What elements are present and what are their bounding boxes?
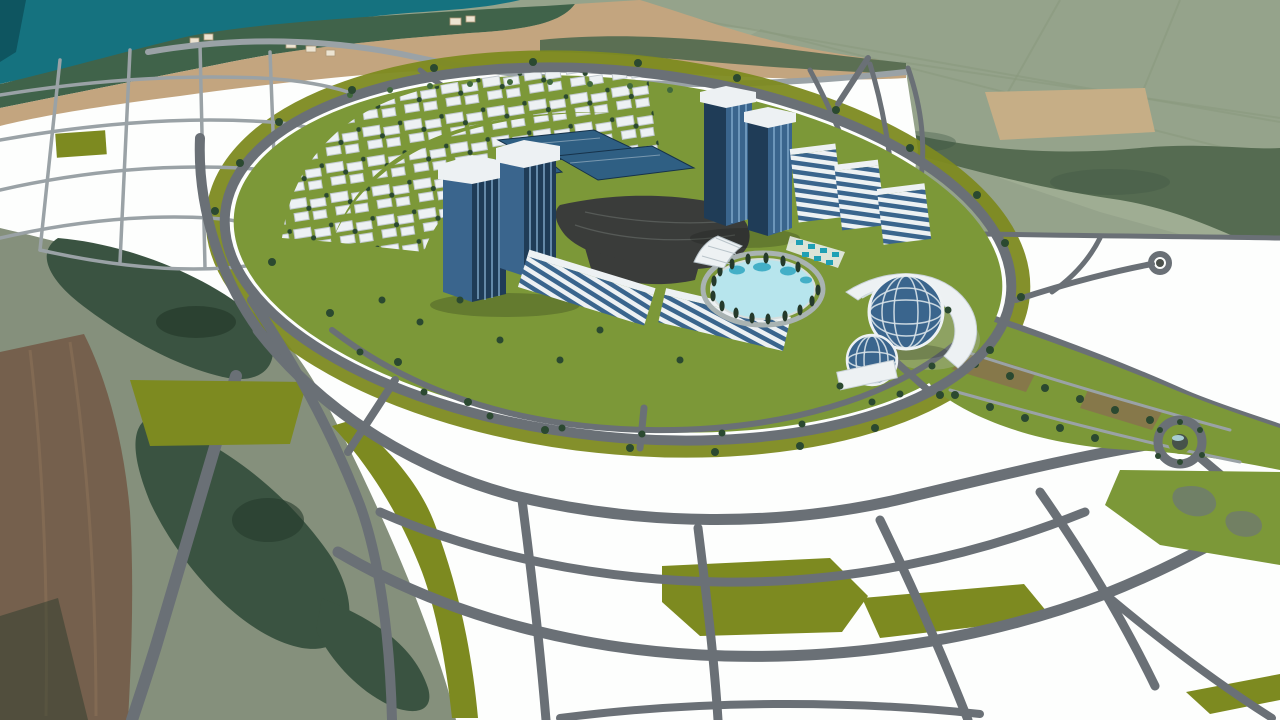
olive-strip-terrain (130, 380, 307, 446)
tan-field (985, 88, 1155, 140)
olive-parcel-small (55, 130, 107, 157)
masterplan-scene: Aerial 3D rendering of a coastal city ma… (0, 0, 1280, 720)
masterplan-rendering: Aerial 3D rendering of a coastal city ma… (0, 0, 1280, 720)
olive-strip-1 (662, 558, 868, 636)
